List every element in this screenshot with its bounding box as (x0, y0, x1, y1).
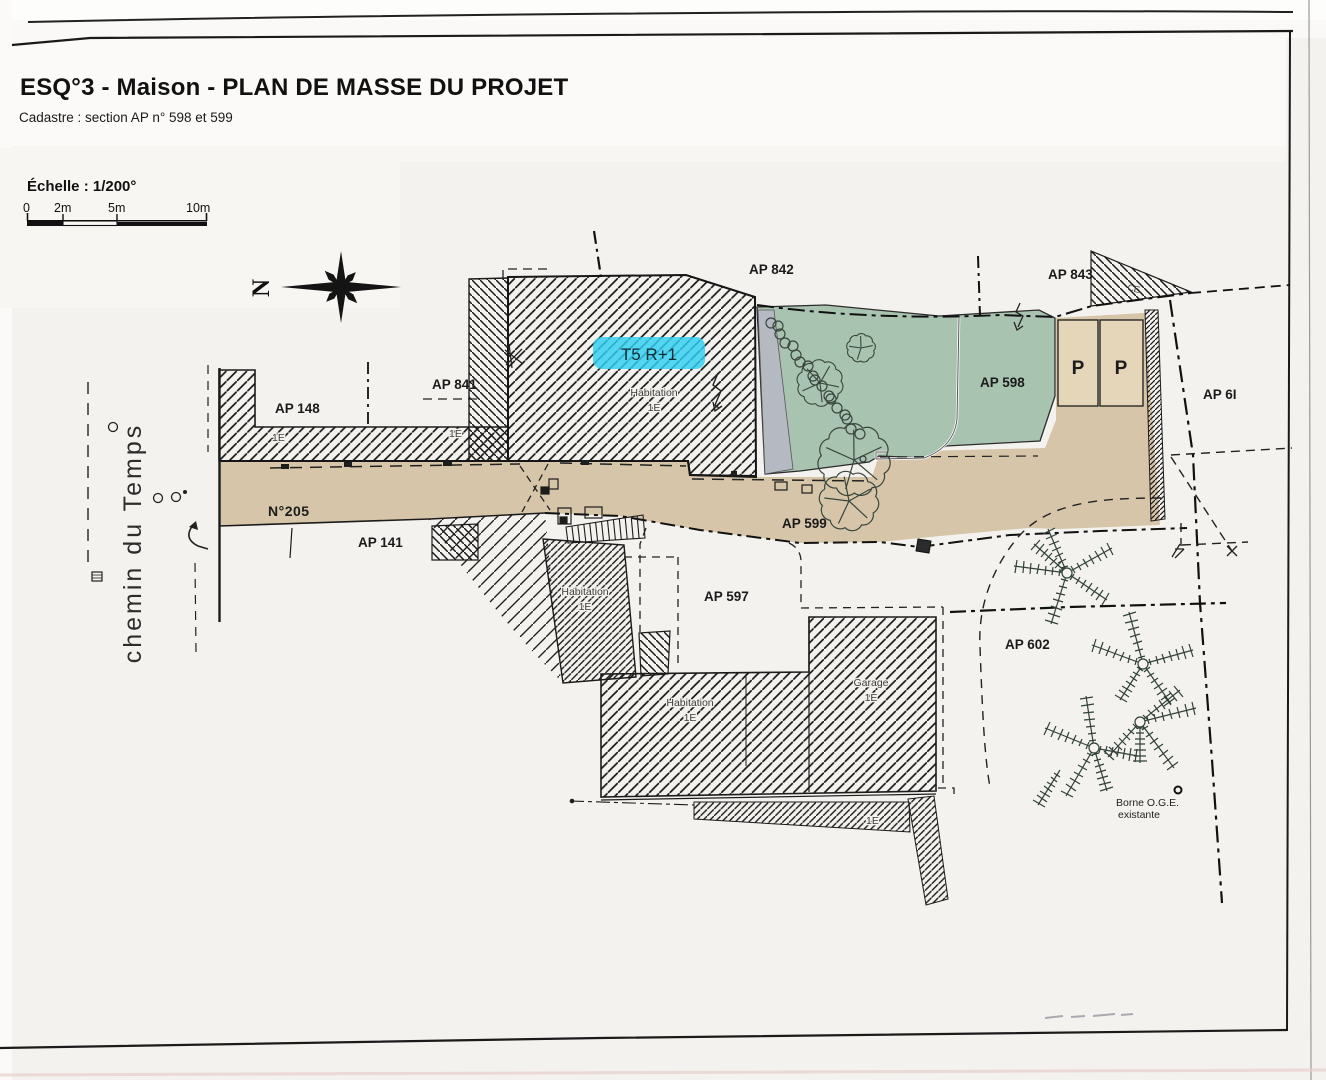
svg-text:AP 842: AP 842 (749, 262, 794, 277)
svg-text:AP 599: AP 599 (782, 516, 827, 531)
svg-text:T5 R+1: T5 R+1 (621, 345, 677, 364)
svg-text:2m: 2m (54, 201, 71, 215)
svg-text:N°205: N°205 (268, 503, 310, 519)
svg-text:1E: 1E (579, 601, 592, 613)
svg-text:ESQ°3 - Maison - PLAN DE MASSE: ESQ°3 - Maison - PLAN DE MASSE DU PROJET (20, 74, 568, 101)
svg-text:AP 598: AP 598 (980, 375, 1025, 390)
svg-text:0: 0 (23, 201, 30, 215)
svg-text:AP 141: AP 141 (358, 535, 403, 550)
svg-text:Cadastre : section AP n° 598 e: Cadastre : section AP n° 598 et 599 (19, 110, 233, 125)
svg-text:1E: 1E (865, 692, 878, 704)
svg-text:Habitation: Habitation (561, 586, 608, 598)
svg-text:existante: existante (1118, 809, 1160, 821)
svg-text:AP 843: AP 843 (1048, 267, 1093, 282)
svg-text:Garage: Garage (853, 677, 888, 689)
svg-text:AP 841: AP 841 (432, 377, 477, 392)
svg-text:1E: 1E (866, 815, 879, 827)
svg-text:Échelle : 1/200°: Échelle : 1/200° (27, 178, 136, 195)
svg-text:10m: 10m (186, 201, 210, 215)
svg-text:1E: 1E (684, 712, 697, 724)
svg-text:1E: 1E (449, 428, 462, 440)
svg-text:AP 602: AP 602 (1005, 637, 1050, 652)
svg-text:Habitation: Habitation (666, 697, 713, 709)
svg-text:Habitation: Habitation (630, 387, 677, 399)
svg-text:AP 597: AP 597 (704, 589, 749, 604)
svg-text:AP 6I: AP 6I (1203, 387, 1237, 402)
svg-text:N: N (248, 279, 275, 297)
svg-text:chemin du Temps: chemin du Temps (119, 423, 147, 663)
svg-text:AP 148: AP 148 (275, 401, 320, 416)
svg-text:Borne O.G.E.: Borne O.G.E. (1116, 797, 1179, 809)
svg-text:5m: 5m (108, 201, 125, 215)
svg-text:1E: 1E (648, 402, 661, 414)
svg-text:P: P (1072, 358, 1085, 379)
svg-text:P: P (1115, 358, 1128, 379)
svg-text:1E: 1E (272, 432, 285, 444)
